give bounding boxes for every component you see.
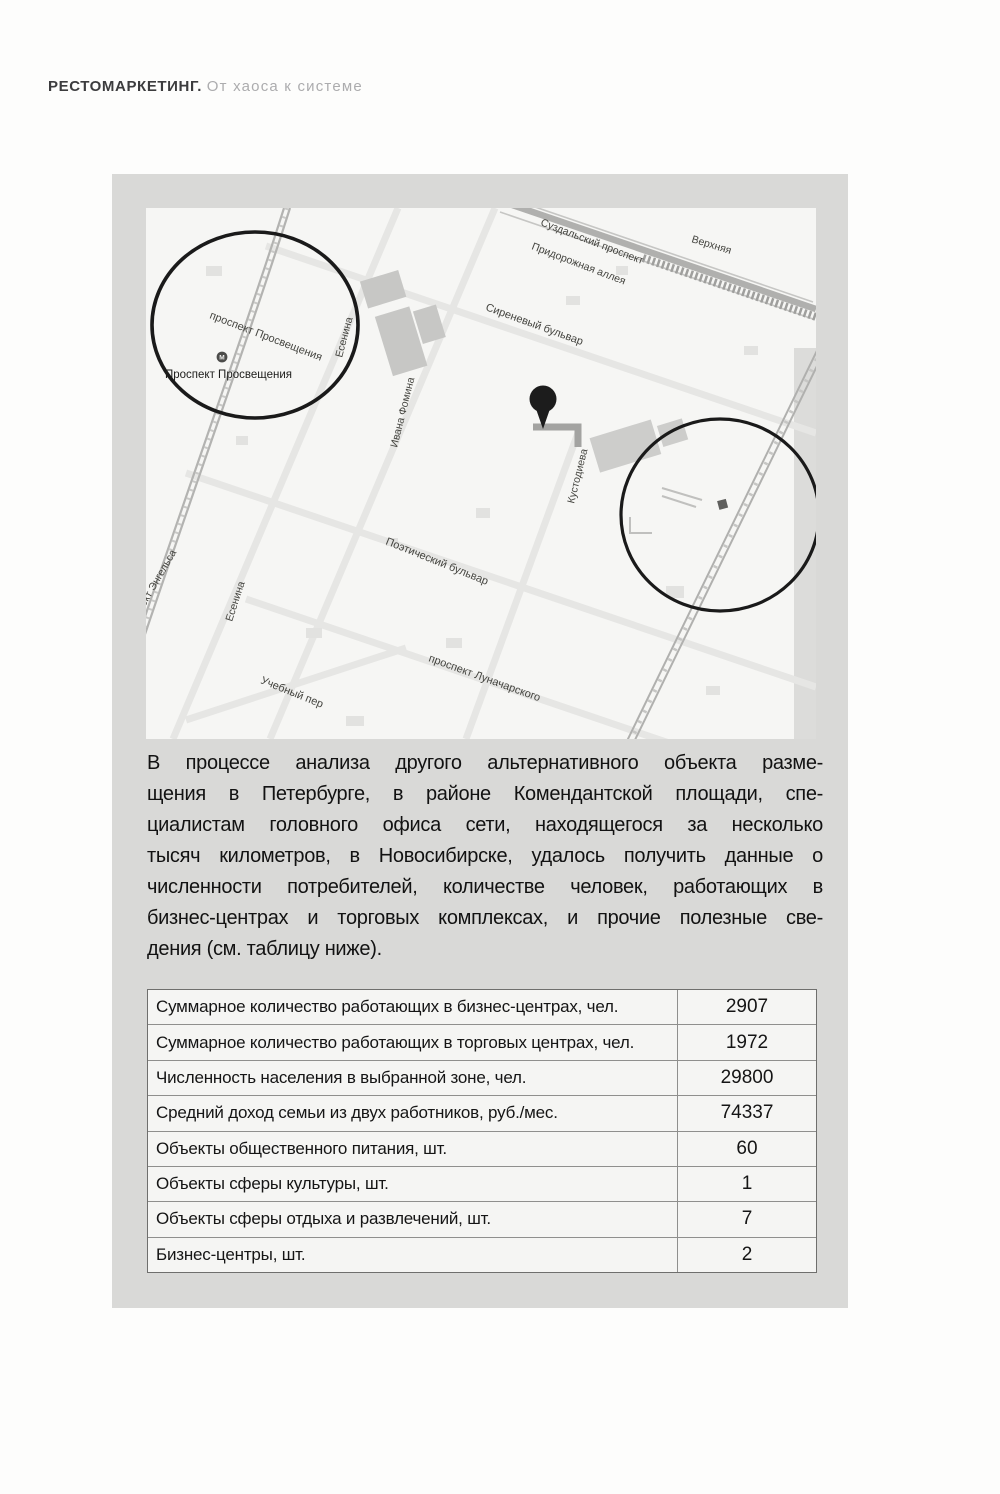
paragraph-line: численности потребителей, количестве чел… [147, 872, 823, 903]
buildings-mall [590, 411, 690, 473]
table-label-cell: Средний доход семьи из двух работников, … [148, 1096, 678, 1130]
body-paragraph: В процессе анализа другого альтернативно… [147, 748, 823, 965]
table-value-cell: 60 [678, 1132, 816, 1166]
table-value-cell: 29800 [678, 1061, 816, 1095]
street-label: пект Энгельса [146, 548, 179, 614]
page-header: РЕСТОМАРКЕТИНГ. От хаоса к системе [48, 78, 363, 95]
table-label-cell: Суммарное количество работающих в бизнес… [148, 990, 678, 1024]
table-value-cell: 74337 [678, 1096, 816, 1130]
book-page: { "header": { "title_bold": "РЕСТОМАРКЕТ… [0, 0, 1000, 1494]
map-pin-marker [530, 386, 557, 430]
table-label-cell: Численность населения в выбранной зоне, … [148, 1061, 678, 1095]
table-value-cell: 1 [678, 1167, 816, 1201]
table-row: Бизнес-центры, шт.2 [148, 1237, 816, 1272]
table-row: Численность населения в выбранной зоне, … [148, 1060, 816, 1095]
table-value-cell: 2907 [678, 990, 816, 1024]
data-table: Суммарное количество работающих в бизнес… [147, 989, 817, 1273]
street-label: Есенина [223, 580, 247, 623]
paragraph-line: циалистам головного офиса сети, находяще… [147, 810, 823, 841]
table-label-cell: Объекты сферы отдыха и развлечений, шт. [148, 1202, 678, 1236]
book-title: РЕСТОМАРКЕТИНГ. [48, 78, 202, 95]
table-row: Суммарное количество работающих в торгов… [148, 1024, 816, 1059]
street-label: Верхняя [690, 233, 733, 256]
suzdalsky-corridor [486, 208, 816, 319]
figure-block: М проспект ПросвещенияПроспект Просвещен… [112, 174, 848, 1308]
table-label-cell: Суммарное количество работающих в торгов… [148, 1025, 678, 1059]
street-label: Проспект Просвещения [165, 369, 292, 381]
paragraph-line: дения (см. таблицу ниже). [147, 934, 823, 965]
table-label-cell: Бизнес-центры, шт. [148, 1238, 678, 1272]
analysis-circle-right [621, 419, 816, 611]
table-row: Объекты сферы культуры, шт.1 [148, 1166, 816, 1201]
paragraph-line: В процессе анализа другого альтернативно… [147, 748, 823, 779]
street-label: Ивана Фомина [388, 376, 417, 449]
table-row: Суммарное количество работающих в бизнес… [148, 990, 816, 1024]
small-poi-marker [717, 499, 728, 510]
table-row: Объекты сферы отдыха и развлечений, шт.7 [148, 1201, 816, 1236]
svg-text:М: М [219, 355, 224, 362]
table-row: Объекты общественного питания, шт.60 [148, 1131, 816, 1166]
table-label-cell: Объекты общественного питания, шт. [148, 1132, 678, 1166]
table-value-cell: 7 [678, 1202, 816, 1236]
book-subtitle: От хаоса к системе [207, 78, 363, 95]
paragraph-line: бизнес-центрах и торговых комплексах, и … [147, 903, 823, 934]
map-image: М проспект ПросвещенияПроспект Просвещен… [146, 208, 816, 739]
table-value-cell: 1972 [678, 1025, 816, 1059]
table-label-cell: Объекты сферы культуры, шт. [148, 1167, 678, 1201]
city-map: М проспект ПросвещенияПроспект Просвещен… [146, 208, 816, 739]
right-circle-details [630, 488, 702, 533]
paragraph-line: щения в Петербурге, в районе Комендантск… [147, 779, 823, 810]
street-label: Поэтический бульвар [384, 536, 490, 588]
paragraph-line: тысяч километров, в Новосибирске, удалос… [147, 841, 823, 872]
table-value-cell: 2 [678, 1238, 816, 1272]
table-row: Средний доход семьи из двух работников, … [148, 1095, 816, 1130]
buildings-dark [360, 262, 452, 377]
metro-icon: М [217, 352, 228, 363]
